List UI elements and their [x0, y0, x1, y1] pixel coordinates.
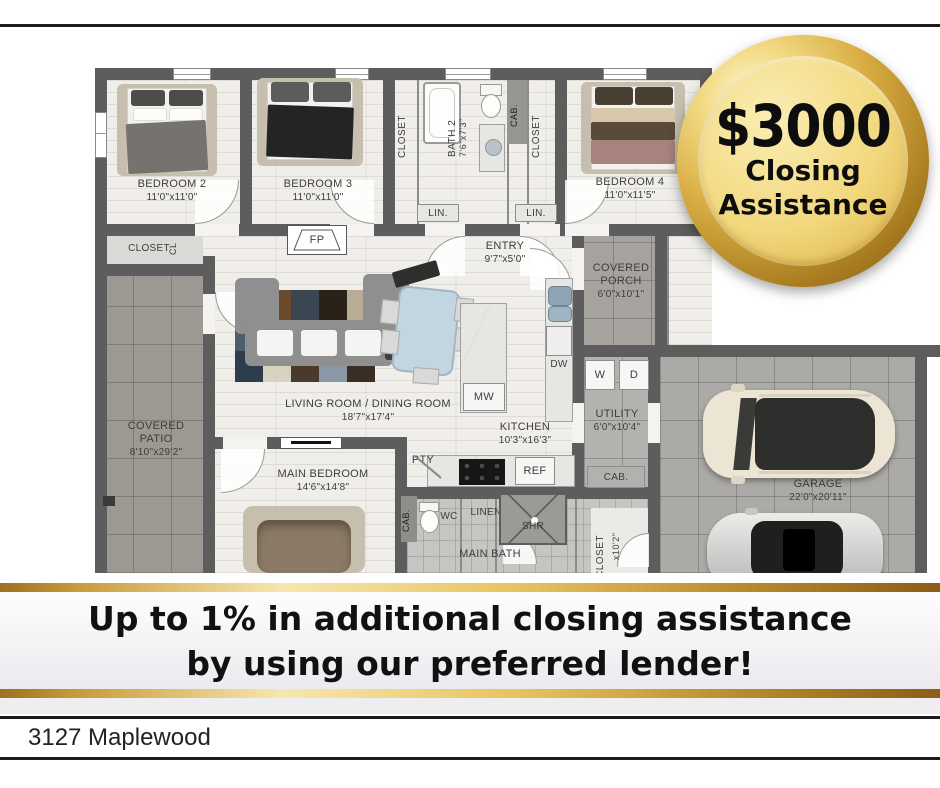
- wall: [565, 345, 940, 357]
- wall: [240, 80, 252, 224]
- address-text: 3127 Maplewood: [0, 724, 211, 752]
- door-gap: [223, 437, 267, 449]
- dryer: D: [619, 360, 649, 390]
- bedroom3-bed: [257, 78, 363, 166]
- closing-assistance-badge: $3000 Closing Assistance: [672, 32, 934, 290]
- sedan-car: [707, 513, 883, 573]
- address-bar: 3127 Maplewood: [0, 716, 940, 760]
- wall: [95, 264, 215, 276]
- bedroom4-bed: [581, 82, 685, 174]
- dining-chair: [380, 299, 400, 325]
- dining-chair: [412, 367, 439, 385]
- toilet: [481, 94, 501, 118]
- gold-divider-bottom: [0, 689, 940, 698]
- wall: [383, 80, 395, 224]
- lender-banner: Up to 1% in additional closing assistanc…: [0, 592, 940, 689]
- room-label-utility: UTILITY 6'0"x10'4": [571, 408, 663, 434]
- exterior-right-sliver: [927, 345, 940, 573]
- bedroom2-bed: [117, 84, 217, 176]
- badge-amount: $3000: [715, 97, 891, 157]
- door-gap: [520, 224, 560, 236]
- linen-cabinet: LIN.: [417, 204, 459, 222]
- window: [603, 68, 647, 80]
- fireplace-label: FP: [288, 234, 346, 247]
- kitchen-sink: [548, 306, 572, 322]
- banner-line2: by using our preferred lender!: [186, 641, 753, 686]
- linen-cabinet: LIN.: [515, 204, 557, 222]
- room-label-porch: COVERED PORCH 6'0"x10'1": [579, 262, 663, 301]
- room-label-main-bedroom: MAIN BEDROOM 14'6"x14'8": [231, 468, 415, 494]
- washer: W: [585, 360, 615, 390]
- cl-label: CL: [168, 234, 184, 264]
- main-bath-cab-label: CAB.: [401, 498, 417, 542]
- shower: [499, 493, 567, 545]
- window: [173, 68, 211, 80]
- stove: [459, 459, 505, 485]
- sofa: [245, 320, 393, 366]
- dishwasher-label: DW: [544, 358, 574, 371]
- door-gap: [425, 224, 465, 236]
- refrigerator: REF: [515, 457, 555, 485]
- closet-label: CLOSET: [397, 93, 415, 179]
- patio-object: [103, 496, 115, 506]
- room-label-bath2: BATH 2 7'6"x7'3": [447, 90, 479, 186]
- media-console-bar: [291, 441, 331, 444]
- room-label-main-closet-dims: x10'2": [611, 516, 627, 573]
- top-divider-line: [0, 24, 940, 27]
- wall: [417, 80, 419, 224]
- door-gap: [565, 224, 609, 236]
- dining-table: [391, 285, 462, 377]
- window: [445, 68, 491, 80]
- dining-chair: [380, 329, 400, 355]
- room-label-kitchen: KITCHEN 10'3"x16'3": [473, 421, 577, 447]
- badge-line2: Assistance: [718, 188, 887, 222]
- room-label-main-bath: MAIN BATH: [425, 548, 555, 561]
- cab-label: CAB.: [509, 86, 525, 144]
- main-bedroom-bed: [243, 506, 365, 573]
- dining-bench: [392, 260, 441, 288]
- utility-cabinet: CAB.: [587, 466, 645, 488]
- window: [95, 112, 107, 158]
- banner-line1: Up to 1% in additional closing assistanc…: [88, 596, 852, 641]
- closet-label: CLOSET: [531, 93, 549, 179]
- shower-label: SHR: [515, 520, 551, 533]
- room-label-entry: ENTRY 9'7"x5'0": [467, 240, 543, 266]
- fireplace: FP: [287, 225, 347, 255]
- room-label-patio: COVERED PATIO 8'10"x29'2": [111, 420, 201, 459]
- room-label-bedroom2: BEDROOM 2 11'0"x11'0": [107, 178, 237, 204]
- wc-label: WC: [435, 510, 463, 523]
- covered-patio-floor: [95, 264, 203, 573]
- gold-divider-top: [0, 583, 940, 592]
- wall: [575, 499, 577, 573]
- banner-substrip: [0, 698, 940, 714]
- suv-car: [703, 390, 895, 478]
- room-label-bedroom3: BEDROOM 3 11'0"x11'0": [255, 178, 381, 204]
- room-label-garage: GARAGE 22'0"x20'11": [759, 478, 877, 504]
- listing-flyer: FP: [0, 0, 940, 788]
- badge-core: $3000 Closing Assistance: [698, 56, 908, 266]
- wall: [648, 357, 660, 573]
- room-label-main-closet: CLOSET: [595, 516, 611, 573]
- room-label-living: LIVING ROOM / DINING ROOM 18'7"x17'4": [243, 398, 493, 424]
- bath2-vanity: [479, 124, 505, 172]
- wall: [915, 357, 927, 573]
- door-gap: [195, 224, 239, 236]
- door-gap: [203, 294, 215, 334]
- dishwasher: [546, 326, 572, 356]
- wall: [527, 80, 529, 224]
- kitchen-sink: [548, 286, 572, 306]
